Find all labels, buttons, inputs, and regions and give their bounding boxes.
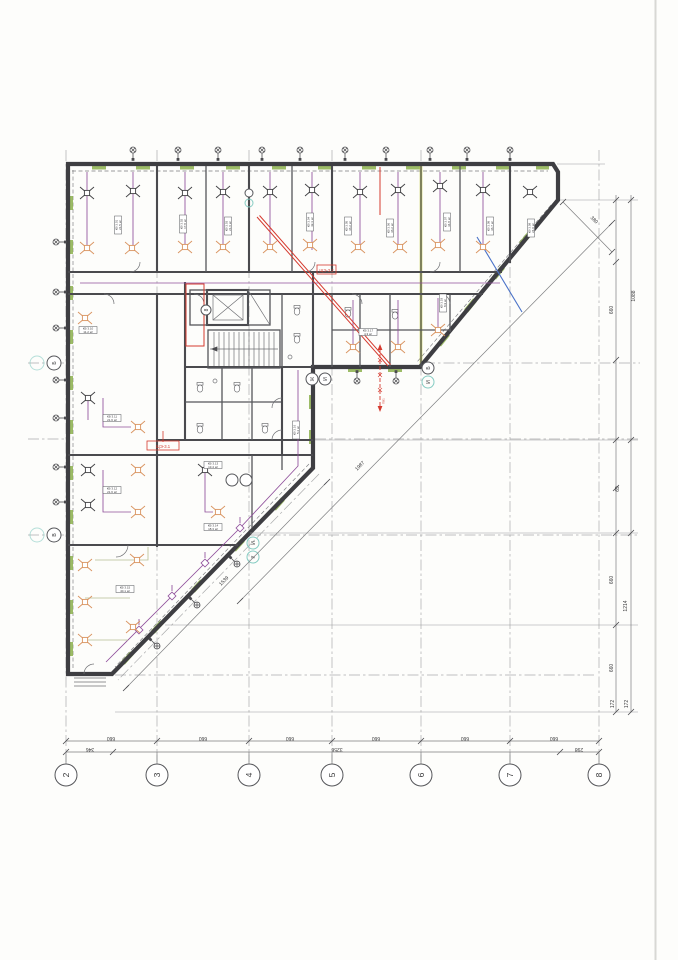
svg-text:24.0 м²: 24.0 м² <box>531 223 535 233</box>
exterior-walls <box>68 164 558 674</box>
svg-text:660: 660 <box>199 735 208 741</box>
svg-text:8: 8 <box>204 308 210 311</box>
svg-text:6: 6 <box>416 772 426 777</box>
svg-text:42.3 м²: 42.3 м² <box>310 217 314 227</box>
svg-text:34.8 м²: 34.8 м² <box>447 217 451 227</box>
ceiling-lights-secondary <box>78 239 490 646</box>
svg-text:298: 298 <box>575 746 584 752</box>
svg-text:13.4 м²: 13.4 м² <box>208 465 218 469</box>
svg-text:И: И <box>426 380 432 384</box>
svg-text:1214: 1214 <box>623 600 629 611</box>
floor-plan-drawing: ЩЭ-3.1 ЩЭ-3.2 ПВ1 К <box>0 0 678 960</box>
svg-text:1539: 1539 <box>218 575 230 587</box>
svg-text:660: 660 <box>609 576 615 585</box>
svg-text:4.3 м²: 4.3 м² <box>364 332 372 336</box>
red-panel-tag-2: ЩЭ-3.2 <box>319 268 334 273</box>
dimension-lines: 660 660 660 660 660 660 346 3256 298 660… <box>63 164 638 755</box>
svg-text:346: 346 <box>86 746 95 752</box>
svg-text:11.2 м²: 11.2 м² <box>83 330 93 334</box>
svg-text:36.2 м²: 36.2 м² <box>348 221 352 231</box>
grid-column-bubbles: 2 3 4 5 6 7 8 <box>55 752 610 786</box>
svg-text:69: 69 <box>615 486 621 492</box>
svg-text:18.3 м²: 18.3 м² <box>208 527 218 531</box>
svg-text:660: 660 <box>609 664 615 673</box>
red-panel-tag: ЩЭ-3.1 <box>156 444 171 449</box>
svg-text:1987: 1987 <box>354 460 366 472</box>
svg-text:8.9 м²: 8.9 м² <box>443 299 447 307</box>
svg-text:172: 172 <box>624 700 630 709</box>
svg-text:660: 660 <box>609 306 615 315</box>
svg-text:380: 380 <box>589 215 599 225</box>
svg-text:И: И <box>251 541 257 545</box>
svg-text:21.6 м²: 21.6 м² <box>107 490 117 494</box>
svg-text:3256: 3256 <box>331 746 342 752</box>
svg-text:172: 172 <box>610 700 616 709</box>
svg-text:660: 660 <box>550 735 559 741</box>
svg-text:21.6 м²: 21.6 м² <box>107 418 117 422</box>
window-marks <box>71 167 550 663</box>
red-riser-label: ПВ1 <box>382 398 386 404</box>
red-markup: ЩЭ-3.1 ЩЭ-3.2 ПВ1 <box>147 167 391 450</box>
svg-text:3: 3 <box>152 772 162 777</box>
svg-text:5: 5 <box>327 772 337 777</box>
svg-text:660: 660 <box>461 735 470 741</box>
scanned-floor-plan-page: ЩЭ-3.1 ЩЭ-3.2 ПВ1 К <box>0 0 678 960</box>
svg-text:И: И <box>323 377 329 381</box>
svg-text:21.5 м²: 21.5 м² <box>118 220 122 230</box>
svg-text:21.6 м²: 21.6 м² <box>228 221 232 231</box>
svg-text:Ж: Ж <box>310 376 316 381</box>
svg-text:660: 660 <box>372 735 381 741</box>
svg-text:7: 7 <box>505 772 515 777</box>
svg-text:8: 8 <box>594 772 604 777</box>
svg-text:17.8 м²: 17.8 м² <box>183 219 187 229</box>
svg-text:36.2 м²: 36.2 м² <box>390 223 394 233</box>
svg-text:660: 660 <box>107 735 116 741</box>
grid-bubble-label: 2 <box>61 772 71 777</box>
svg-text:4: 4 <box>244 772 254 777</box>
svg-text:40.1 м²: 40.1 м² <box>120 589 130 593</box>
svg-text:36.7 м²: 36.7 м² <box>490 221 494 231</box>
svg-text:1088: 1088 <box>631 290 637 301</box>
svg-text:660: 660 <box>286 735 295 741</box>
svg-text:5.2 м²: 5.2 м² <box>296 426 300 434</box>
